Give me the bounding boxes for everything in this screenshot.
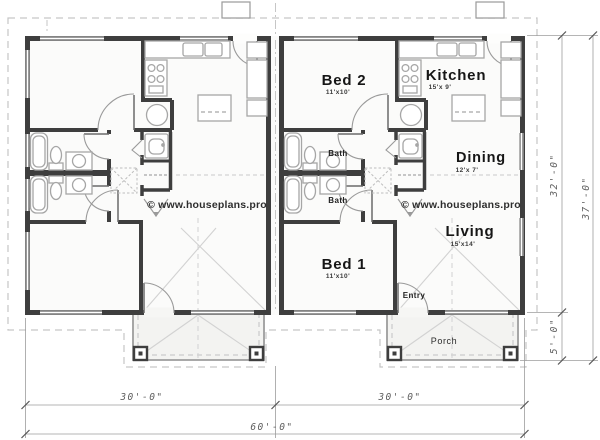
room-label-bath-lower: Bath [328, 196, 347, 205]
room-size-dining: 12'x 7' [456, 167, 479, 174]
dim-house-depth: 32'-0" [549, 153, 560, 197]
room-size-bed2: 11'x10' [326, 89, 350, 96]
floor-plan-page: Bed 2 11'x10' Kitchen 15'x 9' Bath Bath … [0, 0, 600, 440]
dim-total-depth: 37'-0" [581, 176, 592, 220]
watermark-right-unit: © www.houseplans.pro [401, 199, 521, 211]
room-size-bed1: 11'x10' [326, 273, 350, 280]
dim-total-width: 60'-0" [250, 422, 293, 433]
room-label-bed1: Bed 1 [322, 256, 367, 273]
floor-plan-canvas: Bed 2 11'x10' Kitchen 15'x 9' Bath Bath … [0, 0, 600, 440]
room-label-living: Living [446, 223, 495, 240]
room-label-bath-upper: Bath [328, 149, 347, 158]
dim-right-unit-width: 30'-0" [377, 392, 421, 403]
room-label-dining: Dining [456, 150, 506, 166]
room-label-kitchen: Kitchen [426, 67, 487, 84]
chimney-left [222, 2, 250, 18]
room-size-living: 15'x14' [451, 241, 476, 248]
room-label-entry: Entry [403, 291, 426, 300]
room-size-kitchen: 15'x 9' [429, 84, 452, 91]
room-label-bed2: Bed 2 [322, 72, 367, 89]
dim-left-unit-width: 30'-0" [119, 392, 163, 403]
chimney-right [476, 2, 504, 18]
dim-porch-depth: 5'-0" [549, 318, 560, 354]
watermark-left-unit: © www.houseplans.pro [147, 199, 267, 211]
room-label-porch: Porch [431, 336, 458, 346]
